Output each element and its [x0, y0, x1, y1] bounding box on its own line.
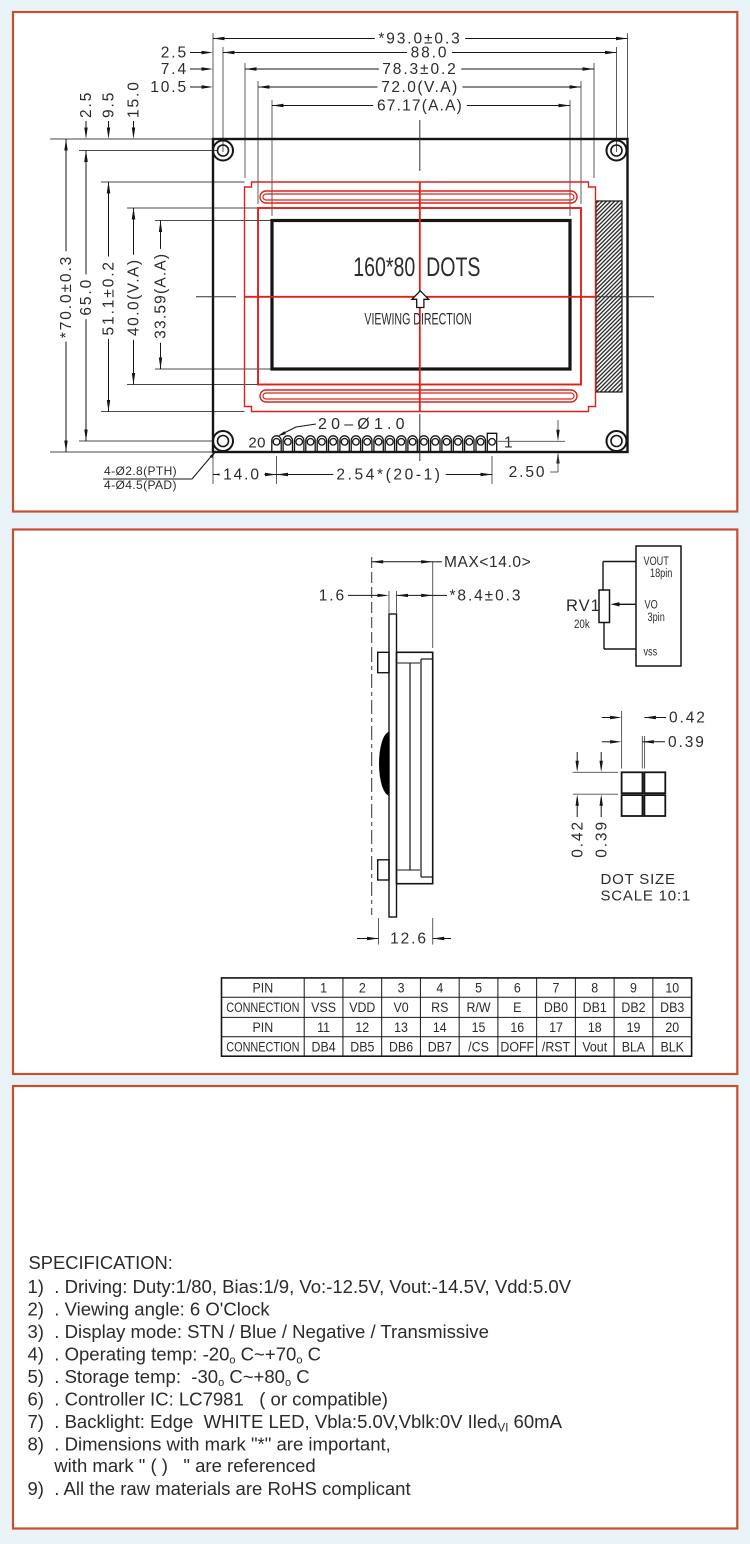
svg-text:10: 10 [665, 980, 679, 996]
svg-text:BLA: BLA [622, 1039, 646, 1055]
svg-text:14: 14 [433, 1019, 447, 1035]
svg-text:BLK: BLK [661, 1039, 685, 1055]
svg-text:VIEWING DIRECTION: VIEWING DIRECTION [364, 310, 471, 328]
svg-text:20: 20 [665, 1019, 679, 1035]
svg-text:DB4: DB4 [312, 1039, 336, 1055]
svg-text:with mark " ( ) " are refere: with mark " ( ) " are referenced [44, 1455, 316, 1476]
svg-text:6) . Controller IC: LC7981: 6) . Controller IC: LC7981 ( or compatib… [28, 1389, 388, 1410]
svg-text:SPECIFICATION:: SPECIFICATION: [29, 1252, 173, 1273]
svg-text:18: 18 [588, 1019, 602, 1035]
svg-text:2.5: 2.5 [161, 45, 188, 62]
svg-text:3) . Display mode: STN / Blue: 3) . Display mode: STN / Blue / Negative… [28, 1321, 489, 1342]
svg-text:R/W: R/W [466, 1000, 491, 1016]
svg-text:7: 7 [553, 980, 560, 996]
svg-text:19: 19 [627, 1019, 641, 1035]
svg-text:VDD: VDD [349, 1000, 375, 1016]
svg-text:6: 6 [514, 980, 521, 996]
svg-text:15: 15 [472, 1019, 486, 1035]
svg-text:65.0: 65.0 [78, 278, 95, 316]
svg-text:DB5: DB5 [350, 1039, 374, 1055]
svg-text:1) . Driving: Duty:1/80, Bias: 1) . Driving: Duty:1/80, Bias:1/9, Vo:-1… [28, 1276, 572, 1297]
svg-text:CONNECTION: CONNECTION [226, 1000, 299, 1016]
svg-text:SCALE 10:1: SCALE 10:1 [601, 888, 692, 905]
svg-text:5) . Storage temp: -30o C~+8: 5) . Storage temp: -30o C~+80o C [28, 1366, 310, 1389]
svg-text:E: E [513, 1000, 522, 1016]
svg-text:20k: 20k [574, 618, 590, 631]
svg-text:4: 4 [436, 980, 443, 996]
svg-text:DB6: DB6 [389, 1039, 413, 1055]
svg-text:DB7: DB7 [428, 1039, 452, 1055]
svg-text:2) . Viewing angle: 6 O'Clock: 2) . Viewing angle: 6 O'Clock [28, 1298, 271, 1319]
svg-text:17: 17 [549, 1019, 563, 1035]
svg-text:VSS: VSS [311, 1000, 336, 1016]
svg-text:7.4: 7.4 [161, 61, 188, 78]
svg-text:DOFF: DOFF [500, 1039, 534, 1055]
svg-text:4-Ø2.8(PTH): 4-Ø2.8(PTH) [104, 464, 177, 478]
svg-text:DOT SIZE: DOT SIZE [601, 871, 676, 888]
svg-text:4) . Operating temp: -20o C~+: 4) . Operating temp: -20o C~+70o C [28, 1344, 321, 1367]
svg-text:2.50: 2.50 [509, 464, 547, 481]
svg-text:9.5: 9.5 [101, 91, 118, 118]
svg-text:67.17(A.A): 67.17(A.A) [377, 98, 463, 115]
svg-text:3: 3 [398, 980, 405, 996]
svg-text:12.6: 12.6 [390, 931, 428, 948]
svg-text:14.0: 14.0 [223, 467, 261, 484]
svg-text:11: 11 [317, 1019, 330, 1035]
svg-text:DB2: DB2 [621, 1000, 645, 1016]
svg-text:PIN: PIN [253, 980, 274, 996]
svg-text:51.1±0.2: 51.1±0.2 [101, 260, 118, 335]
svg-text:vss: vss [644, 645, 658, 659]
svg-text:15.0: 15.0 [126, 80, 143, 118]
svg-text:/RST: /RST [542, 1039, 570, 1055]
svg-text:5: 5 [475, 980, 482, 996]
svg-text:18pin: 18pin [650, 567, 672, 581]
svg-text:8) . Dimensions with mark "*": 8) . Dimensions with mark "*" are import… [28, 1433, 391, 1454]
svg-text:40.0(V.A): 40.0(V.A) [126, 258, 143, 336]
svg-text:V0: V0 [393, 1000, 408, 1016]
svg-text:3pin: 3pin [648, 611, 665, 625]
svg-text:88.0: 88.0 [411, 45, 449, 62]
svg-text:1: 1 [504, 435, 513, 452]
svg-text:13: 13 [394, 1019, 408, 1035]
svg-text:*70.0±0.3: *70.0±0.3 [58, 255, 75, 338]
svg-text:2: 2 [359, 980, 366, 996]
svg-text:1.6: 1.6 [319, 588, 346, 605]
svg-text:16: 16 [510, 1019, 524, 1035]
svg-text:160*80 DOTS: 160*80 DOTS [353, 252, 480, 282]
svg-text:1: 1 [320, 980, 327, 996]
svg-text:2.5: 2.5 [78, 91, 95, 118]
svg-text:0.42: 0.42 [669, 710, 707, 727]
svg-text:4-Ø4.5(PAD): 4-Ø4.5(PAD) [104, 478, 177, 492]
svg-text:10.5: 10.5 [150, 79, 188, 96]
svg-text:33.59(A.A): 33.59(A.A) [153, 253, 170, 339]
svg-text:0.39: 0.39 [668, 734, 706, 751]
svg-text:DB3: DB3 [660, 1000, 684, 1016]
svg-text:/CS: /CS [468, 1039, 489, 1055]
svg-text:9: 9 [630, 980, 637, 996]
svg-text:*8.4±0.3: *8.4±0.3 [450, 588, 523, 605]
svg-text:Vout: Vout [582, 1039, 607, 1055]
svg-text:PIN: PIN [253, 1019, 274, 1035]
svg-text:20: 20 [248, 435, 266, 452]
svg-text:2.54*(20-1): 2.54*(20-1) [336, 467, 442, 484]
svg-text:0.42: 0.42 [569, 820, 586, 858]
svg-text:DB1: DB1 [583, 1000, 607, 1016]
svg-text:72.0(V.A): 72.0(V.A) [381, 79, 459, 96]
svg-text:78.3±0.2: 78.3±0.2 [382, 61, 457, 78]
svg-text:DB0: DB0 [544, 1000, 568, 1016]
svg-text:7) . Backlight: Edge WHITE L: 7) . Backlight: Edge WHITE LED, Vbla:5.0… [28, 1411, 563, 1435]
svg-text:RS: RS [431, 1000, 448, 1016]
svg-text:CONNECTION: CONNECTION [226, 1039, 299, 1055]
svg-text:12: 12 [355, 1019, 369, 1035]
svg-text:MAX<14.0>: MAX<14.0> [444, 554, 531, 571]
svg-text:RV1: RV1 [566, 597, 601, 615]
svg-text:8: 8 [591, 980, 598, 996]
svg-text:0.39: 0.39 [593, 820, 610, 858]
svg-text:9) . All the raw materials ar: 9) . All the raw materials are RoHS comp… [28, 1478, 412, 1499]
svg-text:20–Ø1.0: 20–Ø1.0 [318, 416, 409, 433]
